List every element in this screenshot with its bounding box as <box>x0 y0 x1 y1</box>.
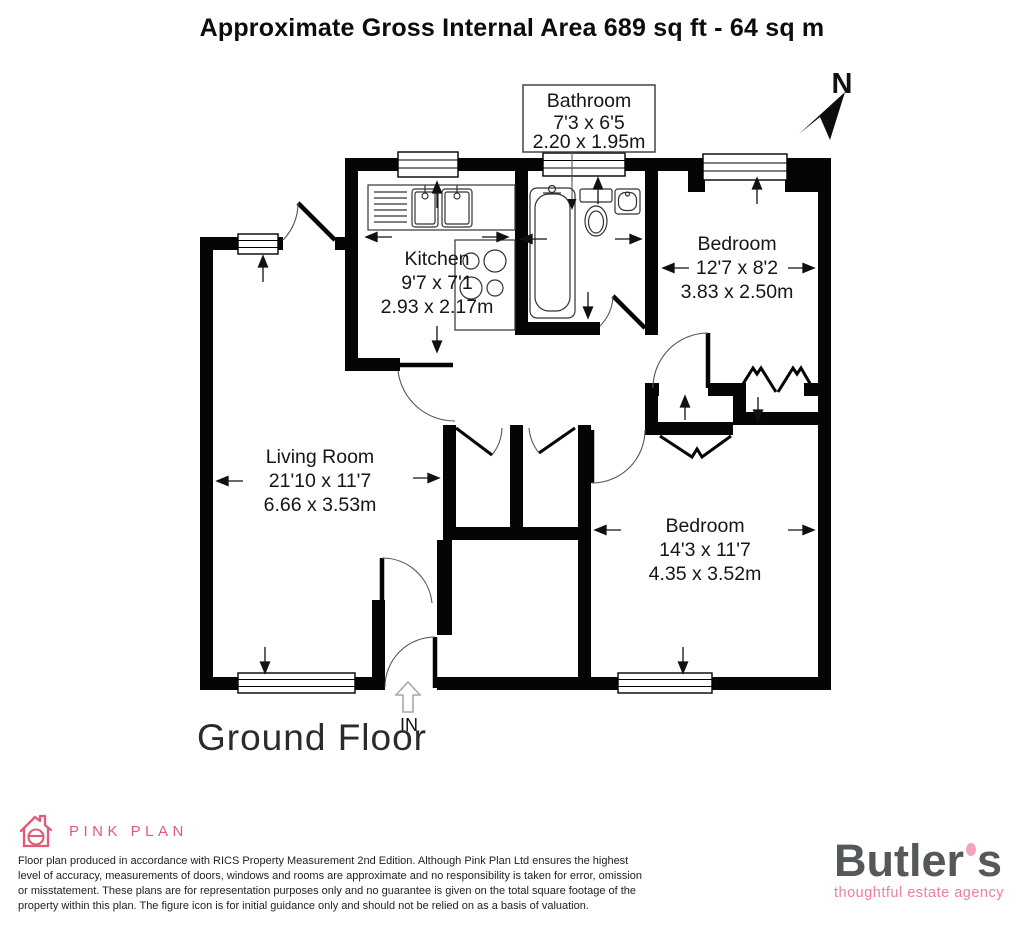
toilet-icon <box>580 189 612 202</box>
wall-segment <box>437 540 452 635</box>
agency-name-left: Butler <box>834 840 964 882</box>
room-label-bedroom2: Bedroom 14'3 x 11'7 4.35 x 3.52m <box>649 515 762 585</box>
tap-icon <box>454 193 460 199</box>
dimension-arrow <box>595 526 621 535</box>
dimension-arrow <box>433 182 442 208</box>
door <box>456 428 502 455</box>
dimension-arrow <box>681 396 690 420</box>
wall-segment <box>443 527 590 540</box>
bathroom-fixtures <box>530 186 640 319</box>
dimension-arrow <box>615 235 641 244</box>
room-dim-imperial: 21'10 x 11'7 <box>269 470 372 492</box>
north-arrow-icon <box>799 92 845 140</box>
disclaimer-line: level of accuracy, measurements of doors… <box>18 869 642 884</box>
wall-segment <box>510 425 523 540</box>
door <box>600 296 645 328</box>
drainer-icon <box>374 192 407 222</box>
window <box>618 673 712 693</box>
room-name: Bedroom <box>697 233 776 255</box>
room-name: Living Room <box>266 446 374 468</box>
wall-segment <box>200 237 213 690</box>
dimension-arrow <box>261 647 270 673</box>
sink-icon <box>412 189 438 227</box>
door <box>283 203 335 240</box>
dimension-arrow <box>366 233 392 242</box>
wall-segment <box>345 158 358 371</box>
dimension-arrow <box>753 178 762 204</box>
room-name: Kitchen <box>404 248 469 270</box>
hob-burner-icon <box>484 250 506 272</box>
door <box>382 558 432 603</box>
disclaimer-line: property within this plan. The figure ic… <box>18 899 642 914</box>
wall-segment <box>818 158 831 690</box>
door <box>529 428 575 453</box>
room-dim-metric: 3.83 x 2.50m <box>681 281 794 303</box>
bathroom-label-box: Bathroom 7'3 x 6'5 2.20 x 1.95m <box>523 85 655 210</box>
apostrophe-dot-icon <box>966 843 976 856</box>
door <box>653 333 708 388</box>
dimension-arrow <box>788 264 814 273</box>
wall-segment <box>645 422 733 435</box>
bathtub-icon <box>530 188 575 318</box>
window <box>238 234 278 254</box>
pink-plan-house-icon <box>16 812 56 850</box>
floor-name: Ground Floor <box>197 717 427 758</box>
wall-segment <box>515 171 528 335</box>
dimension-arrow <box>433 326 442 352</box>
dimension-arrow <box>679 647 688 673</box>
door-opening <box>283 235 335 252</box>
room-label-living-room: Living Room 21'10 x 11'7 6.66 x 3.53m <box>264 446 377 516</box>
room-dim-metric: 2.20 x 1.95m <box>533 131 646 153</box>
sink-icon <box>442 189 472 227</box>
wall-segment <box>443 425 456 540</box>
agency-name-right: s <box>977 840 1002 882</box>
window <box>398 152 458 177</box>
disclaimer-text: Floor plan produced in accordance with R… <box>18 854 642 914</box>
dimension-arrow <box>259 256 268 282</box>
wall-segment <box>515 322 600 335</box>
room-dim-metric: 2.93 x 2.17m <box>381 296 494 318</box>
dimension-arrow <box>663 264 689 273</box>
dimension-arrow <box>413 474 439 483</box>
producer-logo: PINK PLAN <box>16 812 188 850</box>
agency-logo: Butlers thoughtful estate agency <box>834 840 1004 901</box>
room-dim-imperial: 14'3 x 11'7 <box>659 539 751 561</box>
wall-segment <box>578 425 591 690</box>
agency-name: Butlers <box>834 840 1004 882</box>
agency-tagline: thoughtful estate agency <box>834 885 1004 901</box>
door <box>592 430 645 483</box>
wall-segment <box>372 600 385 690</box>
room-dim-imperial: 12'7 x 8'2 <box>696 257 778 279</box>
producer-name: PINK PLAN <box>69 823 188 840</box>
floorplan-page: Approximate Gross Internal Area 689 sq f… <box>0 0 1024 928</box>
dimension-arrow <box>584 292 593 318</box>
room-label-bedroom1: Bedroom 12'7 x 8'2 3.83 x 2.50m <box>681 233 794 303</box>
dimension-arrow <box>217 477 243 486</box>
disclaimer-line: Floor plan produced in accordance with R… <box>18 854 642 869</box>
window <box>543 153 625 176</box>
wall-segment <box>345 358 400 371</box>
wall-segment <box>645 383 658 435</box>
wall-segment <box>785 171 818 192</box>
tap-icon <box>422 193 428 199</box>
room-name: Bedroom <box>665 515 744 537</box>
room-label-kitchen: Kitchen 9'7 x 7'1 2.93 x 2.17m <box>381 248 494 318</box>
room-dim-metric: 4.35 x 3.52m <box>649 563 762 585</box>
room-dim-metric: 6.66 x 3.53m <box>264 494 377 516</box>
dimension-arrow <box>788 526 814 535</box>
disclaimer-line: or misstatement. These plans are for rep… <box>18 884 642 899</box>
wall-segment <box>645 171 658 335</box>
hob-burner-icon <box>487 280 503 296</box>
compass: N <box>799 68 852 140</box>
window <box>703 154 787 180</box>
window <box>238 673 355 693</box>
room-name: Bathroom <box>547 90 632 112</box>
door <box>398 365 455 421</box>
dimension-arrow <box>594 178 603 204</box>
room-dim-imperial: 9'7 x 7'1 <box>401 272 472 294</box>
floorplan-drawing: N Bathroom 7'3 x 6'5 2.20 x 1.95m Kitche… <box>0 0 1024 780</box>
